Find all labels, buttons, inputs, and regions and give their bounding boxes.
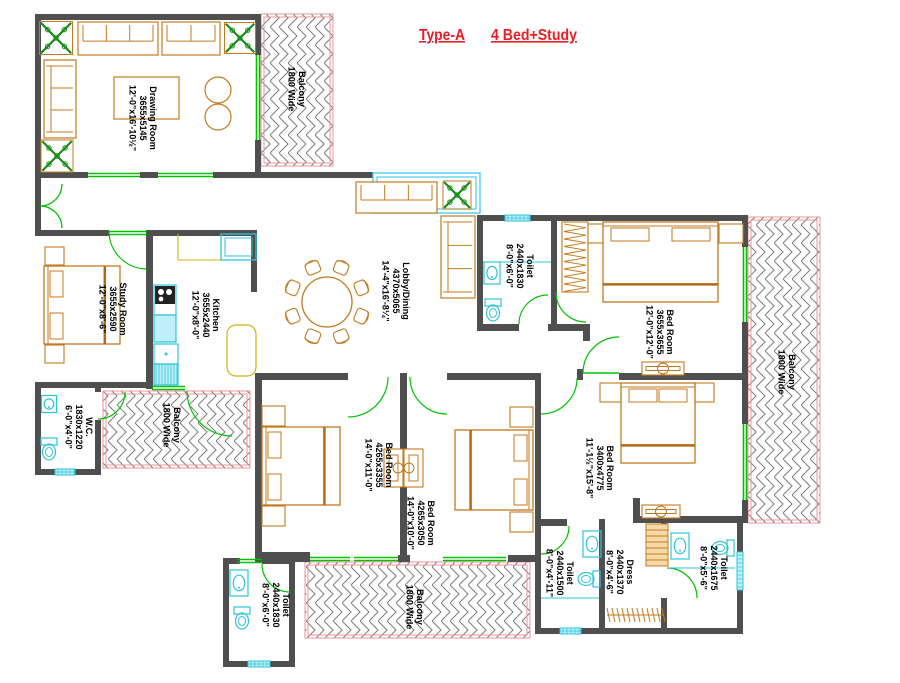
svg-text:Study Room3655x259012'-0"x8'-6: Study Room3655x259012'-0"x8'-6" [98,283,129,336]
svg-text:Balcony1800 Wide: Balcony1800 Wide [404,585,425,630]
svg-text:Bed Room3655x365512'-0"x12'-0": Bed Room3655x365512'-0"x12'-0" [645,305,676,359]
svg-text:Lobby/Dining4370x506514'-4"x16: Lobby/Dining4370x506514'-4"x16'-8¼" [381,260,412,321]
svg-text:Bed Room4265x305014'-0"x10'-0": Bed Room4265x305014'-0"x10'-0" [406,496,437,550]
svg-text:Balcony1800 Wide: Balcony1800 Wide [286,67,307,112]
svg-text:Bed Room4265x335514'-0"x11'-0": Bed Room4265x335514'-0"x11'-0" [364,438,395,491]
svg-text:4 Bed+Study: 4 Bed+Study [491,27,577,44]
svg-text:Type-A: Type-A [419,27,465,44]
svg-text:Balcony1800 Wide: Balcony1800 Wide [776,350,797,395]
svg-text:Balcony1800 Wide: Balcony1800 Wide [161,403,182,448]
svg-text:Bed Room3400x477511'-1½"x15'-8: Bed Room3400x477511'-1½"x15'-8" [585,438,616,499]
